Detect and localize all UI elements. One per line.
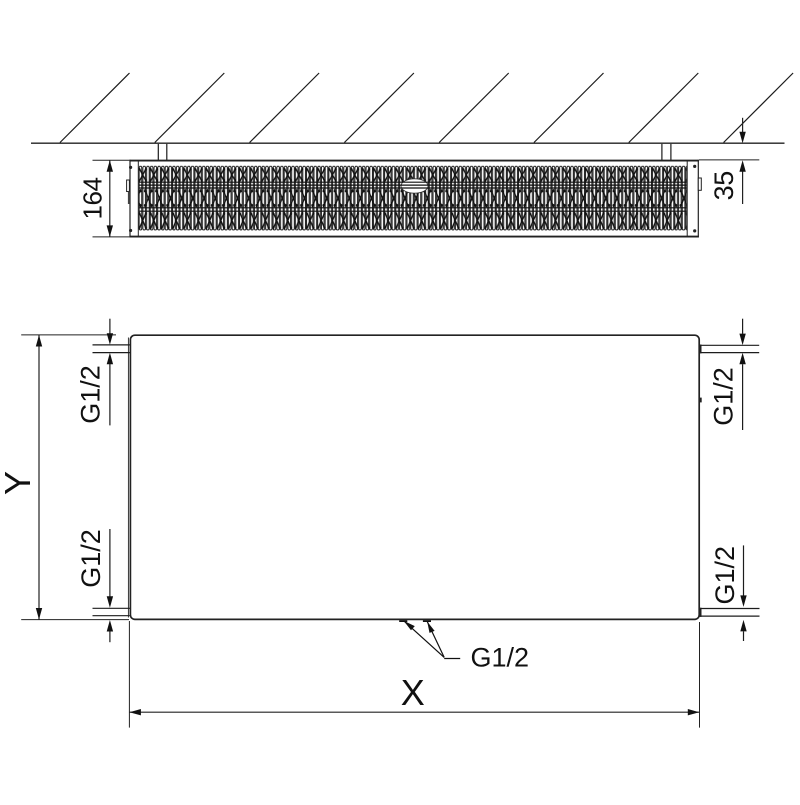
svg-text:G1/2: G1/2 [471,643,530,673]
svg-text:Y: Y [0,471,38,495]
svg-text:G1/2: G1/2 [710,546,740,605]
svg-text:G1/2: G1/2 [709,367,739,426]
svg-text:35: 35 [709,171,739,200]
svg-text:G1/2: G1/2 [76,365,106,424]
svg-text:G1/2: G1/2 [76,529,106,588]
svg-text:164: 164 [78,178,108,220]
svg-text:X: X [401,672,425,713]
